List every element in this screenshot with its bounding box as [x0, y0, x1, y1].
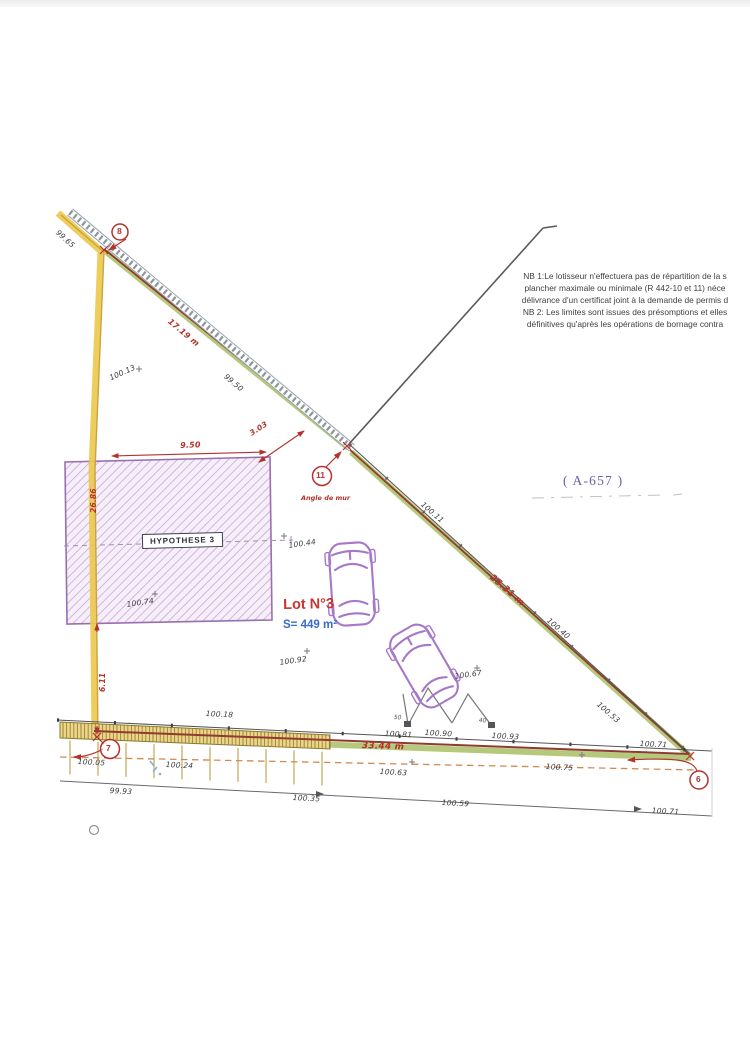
spot-elevation: 100.35 — [293, 793, 321, 803]
spot-elevation: 100.93 — [492, 731, 520, 741]
spot-elevation: 100.44 — [288, 537, 316, 550]
spot-elevation: 100.71 — [652, 806, 680, 816]
scanned-survey-plan-page: { "notes": { "line1": "NB 1:Le lotisseur… — [0, 0, 750, 1060]
spot-elevation: 99.50 — [222, 372, 245, 393]
gate-width-left: 50 — [394, 714, 402, 721]
spot-elevation: 99.65 — [54, 228, 77, 250]
spot-elevation: 100.05 — [78, 757, 106, 767]
dimension-corner-offset: 3.03 — [248, 419, 269, 437]
dimension-left-lower: 6.11 — [98, 673, 107, 692]
spot-elevation: 100.11 — [419, 500, 446, 525]
lot-area: S= 449 m² — [283, 619, 337, 631]
boundary-point-11: 11 — [316, 470, 325, 480]
boundary-point-8: 8 — [117, 226, 122, 236]
spot-elevation: 100.71 — [640, 739, 668, 749]
note-line: NB 1:Le lotisseur n'effectuera pas de ré… — [497, 271, 750, 283]
dimension-street-length: 33.44 m — [362, 741, 405, 752]
label-layer: NB 1:Le lotisseur n'effectuera pas de ré… — [0, 0, 750, 1060]
note-line: NB 2: Les limites sont issues des présom… — [497, 307, 750, 319]
spot-elevation: 100.67 — [454, 668, 482, 681]
note-line: définitives qu'après les opérations de b… — [497, 319, 750, 331]
dimension-rect-width: 9.50 — [180, 440, 201, 450]
angle-de-mur-label: Angle de mur — [301, 494, 350, 502]
spot-elevation: 99.93 — [110, 786, 133, 796]
lot-title: Lot N°3 — [283, 596, 334, 613]
spot-elevation: 100.63 — [380, 767, 408, 777]
spot-elevation: 100.24 — [166, 760, 194, 770]
spot-elevation: 100.92 — [279, 654, 307, 667]
notes-block: NB 1:Le lotisseur n'effectuera pas de ré… — [497, 271, 750, 331]
spot-elevation: 100.53 — [595, 700, 622, 725]
spot-elevation: 100.59 — [442, 798, 470, 808]
spot-elevation: 100.90 — [425, 728, 453, 738]
hypothesis-label-box: HYPOTHESE 3 — [142, 532, 223, 549]
note-line: plancher maximale ou minimale (R 442-10 … — [497, 283, 750, 295]
spot-elevation: 100.74 — [126, 596, 154, 609]
boundary-point-7: 7 — [106, 743, 111, 753]
gate-width-right: 40 — [479, 717, 487, 724]
spot-elevation: 100.81 — [385, 729, 413, 739]
spot-elevation: 100.40 — [545, 616, 572, 641]
boundary-point-6: 6 — [696, 774, 701, 784]
spot-elevation: 100.75 — [546, 762, 574, 772]
spot-elevation: 100.13 — [108, 363, 137, 382]
dimension-fence-length: 17.19 m — [166, 317, 201, 348]
spot-elevation: 100.18 — [206, 709, 234, 719]
dimension-diagonal-length: 25.31 m — [487, 573, 526, 608]
dimension-left-upper: 26.86 — [89, 488, 98, 513]
note-line: délivrance d'un certificat joint à la de… — [497, 295, 750, 307]
parcel-reference: ( A-657 ) — [563, 473, 623, 489]
